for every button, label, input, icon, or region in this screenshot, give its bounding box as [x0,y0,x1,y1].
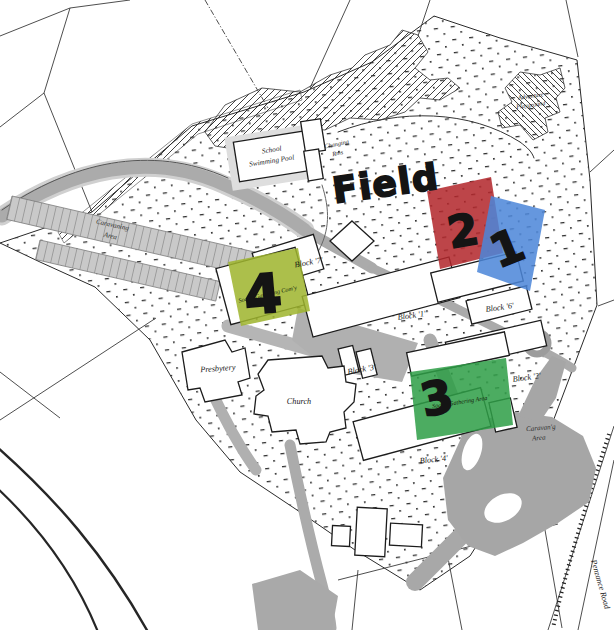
south-building-a [355,507,387,557]
south-building-b [389,523,422,547]
site-plan-map: Social Gathering Area Social Gathering C… [0,0,614,630]
south-building-c [331,526,350,547]
church-label: Church [287,397,311,406]
caravan-area-se-label-2: Area [531,433,546,442]
highlight-4-number: 4 [241,261,284,327]
map-canvas: Social Gathering Area Social Gathering C… [0,0,614,630]
curved-roads-southwest [0,446,148,630]
penzance-road-label: Penzance Road [589,558,612,611]
changing-rooms-building-a [301,119,326,154]
